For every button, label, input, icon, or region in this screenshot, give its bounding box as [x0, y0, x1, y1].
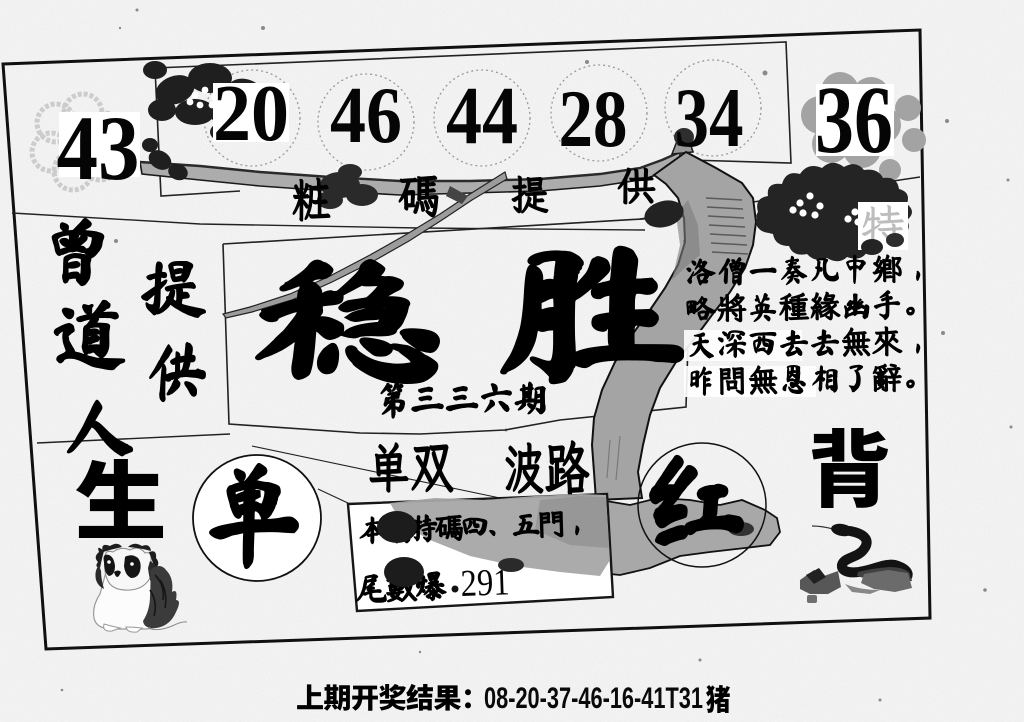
svg-text:20: 20: [213, 70, 289, 158]
svg-text:36: 36: [815, 66, 893, 173]
svg-text:34: 34: [675, 71, 744, 165]
svg-text:43: 43: [57, 97, 140, 199]
svg-text:08-20-37-46-16-41T31: 08-20-37-46-16-41T31: [484, 682, 703, 715]
svg-text:44: 44: [446, 69, 518, 161]
svg-text:28: 28: [559, 73, 628, 164]
svg-text:46: 46: [330, 72, 402, 160]
